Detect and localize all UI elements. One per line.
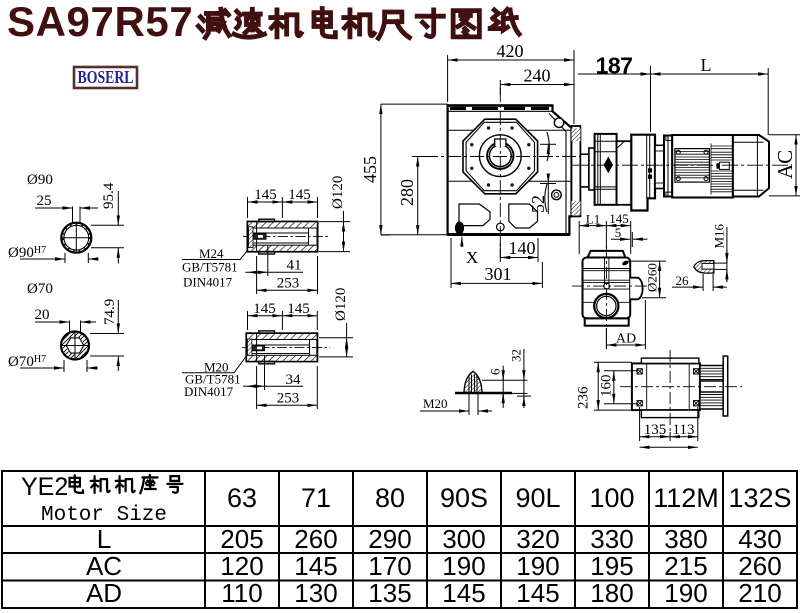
- svg-text:100: 100: [589, 483, 634, 513]
- svg-text:145: 145: [254, 187, 277, 203]
- svg-text:205: 205: [220, 524, 263, 554]
- svg-text:52: 52: [528, 195, 548, 213]
- svg-text:AC: AC: [773, 150, 797, 179]
- svg-text:145: 145: [288, 187, 311, 203]
- svg-text:145: 145: [287, 301, 310, 317]
- svg-text:145: 145: [609, 211, 629, 226]
- svg-text:170: 170: [368, 551, 411, 581]
- svg-text:190: 190: [664, 578, 707, 608]
- svg-text:Ø70: Ø70: [27, 281, 53, 297]
- svg-text:132S: 132S: [728, 483, 791, 513]
- svg-text:Ø90: Ø90: [27, 172, 53, 188]
- svg-text:190: 190: [442, 551, 485, 581]
- svg-text:AC: AC: [86, 551, 122, 581]
- svg-text:280: 280: [397, 179, 417, 206]
- svg-text:145: 145: [442, 578, 485, 608]
- svg-text:190: 190: [516, 551, 559, 581]
- svg-text:L1: L1: [586, 212, 600, 227]
- svg-text:41: 41: [287, 258, 302, 274]
- svg-text:113: 113: [673, 422, 695, 438]
- svg-text:110: 110: [221, 578, 262, 608]
- svg-text:260: 260: [294, 524, 337, 554]
- svg-text:160: 160: [599, 375, 615, 398]
- svg-text:145: 145: [253, 301, 276, 317]
- svg-text:20: 20: [35, 307, 50, 323]
- svg-text:260: 260: [738, 551, 781, 581]
- svg-text:253: 253: [277, 276, 300, 292]
- svg-text:135: 135: [644, 422, 667, 438]
- svg-text:236: 236: [576, 386, 592, 409]
- svg-text:300: 300: [442, 524, 485, 554]
- svg-text:130: 130: [294, 578, 337, 608]
- svg-text:X: X: [466, 248, 478, 267]
- svg-text:420: 420: [497, 41, 524, 61]
- svg-text:26: 26: [676, 273, 690, 288]
- svg-text:M16: M16: [712, 223, 727, 248]
- svg-text:M20: M20: [423, 396, 448, 411]
- svg-text:25: 25: [37, 193, 52, 209]
- svg-text:DIN4017: DIN4017: [183, 275, 233, 290]
- svg-text:320: 320: [516, 524, 559, 554]
- svg-text:145: 145: [294, 551, 337, 581]
- svg-text:135: 135: [368, 578, 411, 608]
- svg-text:6: 6: [488, 368, 503, 375]
- svg-text:215: 215: [664, 551, 707, 581]
- svg-text:430: 430: [738, 524, 781, 554]
- svg-text:240: 240: [524, 66, 551, 86]
- svg-text:380: 380: [664, 524, 707, 554]
- svg-text:Ø260: Ø260: [645, 263, 660, 292]
- svg-text:90S: 90S: [440, 483, 488, 513]
- svg-text:145: 145: [516, 578, 559, 608]
- svg-text:L: L: [701, 55, 712, 75]
- svg-text:63: 63: [227, 483, 257, 513]
- svg-text:L: L: [97, 524, 111, 554]
- svg-text:120: 120: [220, 551, 263, 581]
- svg-text:SA97R57: SA97R57: [7, 0, 193, 45]
- svg-text:180: 180: [590, 578, 633, 608]
- svg-text:80: 80: [375, 483, 405, 513]
- svg-text:195: 195: [590, 551, 633, 581]
- svg-text:BOSERL: BOSERL: [78, 67, 134, 87]
- svg-text:Ø120: Ø120: [330, 176, 346, 209]
- svg-text:301: 301: [485, 264, 512, 284]
- svg-text:330: 330: [590, 524, 633, 554]
- svg-text:AD: AD: [616, 332, 636, 347]
- svg-text:210: 210: [738, 578, 781, 608]
- svg-text:95.4: 95.4: [101, 182, 117, 209]
- svg-text:GB/T5781: GB/T5781: [182, 260, 238, 275]
- svg-text:AD: AD: [86, 578, 122, 608]
- svg-text:253: 253: [277, 391, 300, 407]
- svg-text:74.9: 74.9: [102, 299, 118, 325]
- svg-text:187: 187: [596, 53, 633, 79]
- svg-text:32: 32: [509, 349, 524, 362]
- svg-text:YE2: YE2: [21, 473, 68, 501]
- svg-text:71: 71: [301, 483, 331, 513]
- svg-text:90L: 90L: [515, 483, 560, 513]
- svg-text:Ø120: Ø120: [333, 288, 349, 321]
- svg-text:DIN4017: DIN4017: [184, 384, 234, 399]
- svg-text:290: 290: [368, 524, 411, 554]
- svg-text:140: 140: [509, 238, 536, 258]
- svg-text:455: 455: [360, 156, 380, 183]
- svg-text:5: 5: [615, 225, 622, 240]
- svg-text:34: 34: [286, 372, 302, 388]
- svg-text:112M: 112M: [653, 483, 719, 513]
